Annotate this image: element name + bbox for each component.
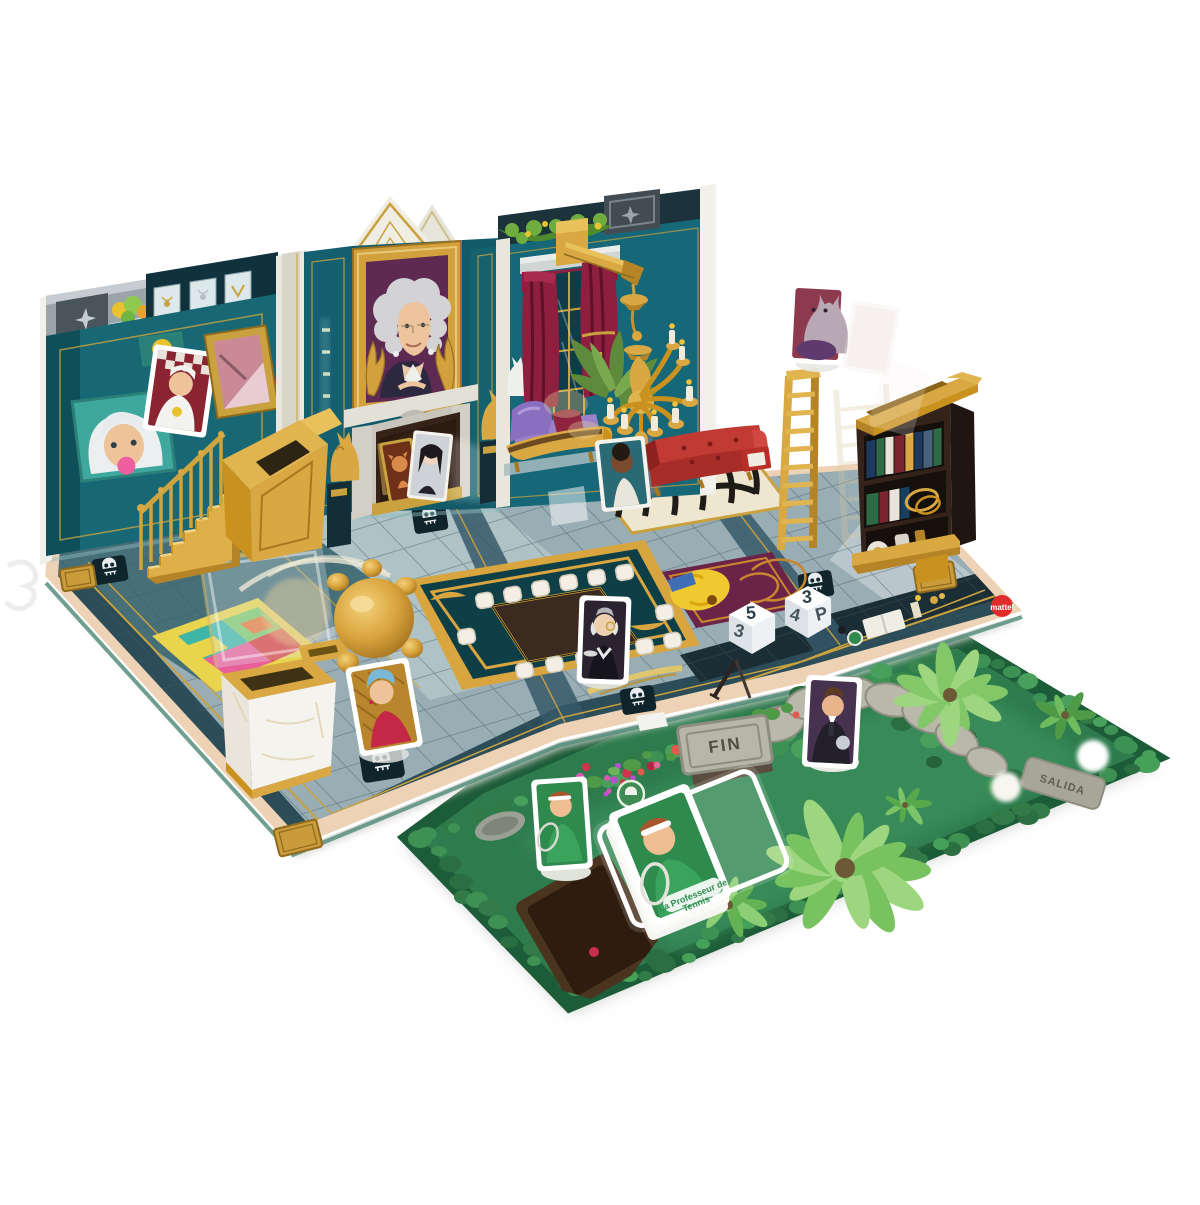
svg-text:3: 3 (801, 586, 812, 607)
svg-text:mattel: mattel (990, 603, 1014, 612)
svg-text:5: 5 (745, 602, 756, 623)
